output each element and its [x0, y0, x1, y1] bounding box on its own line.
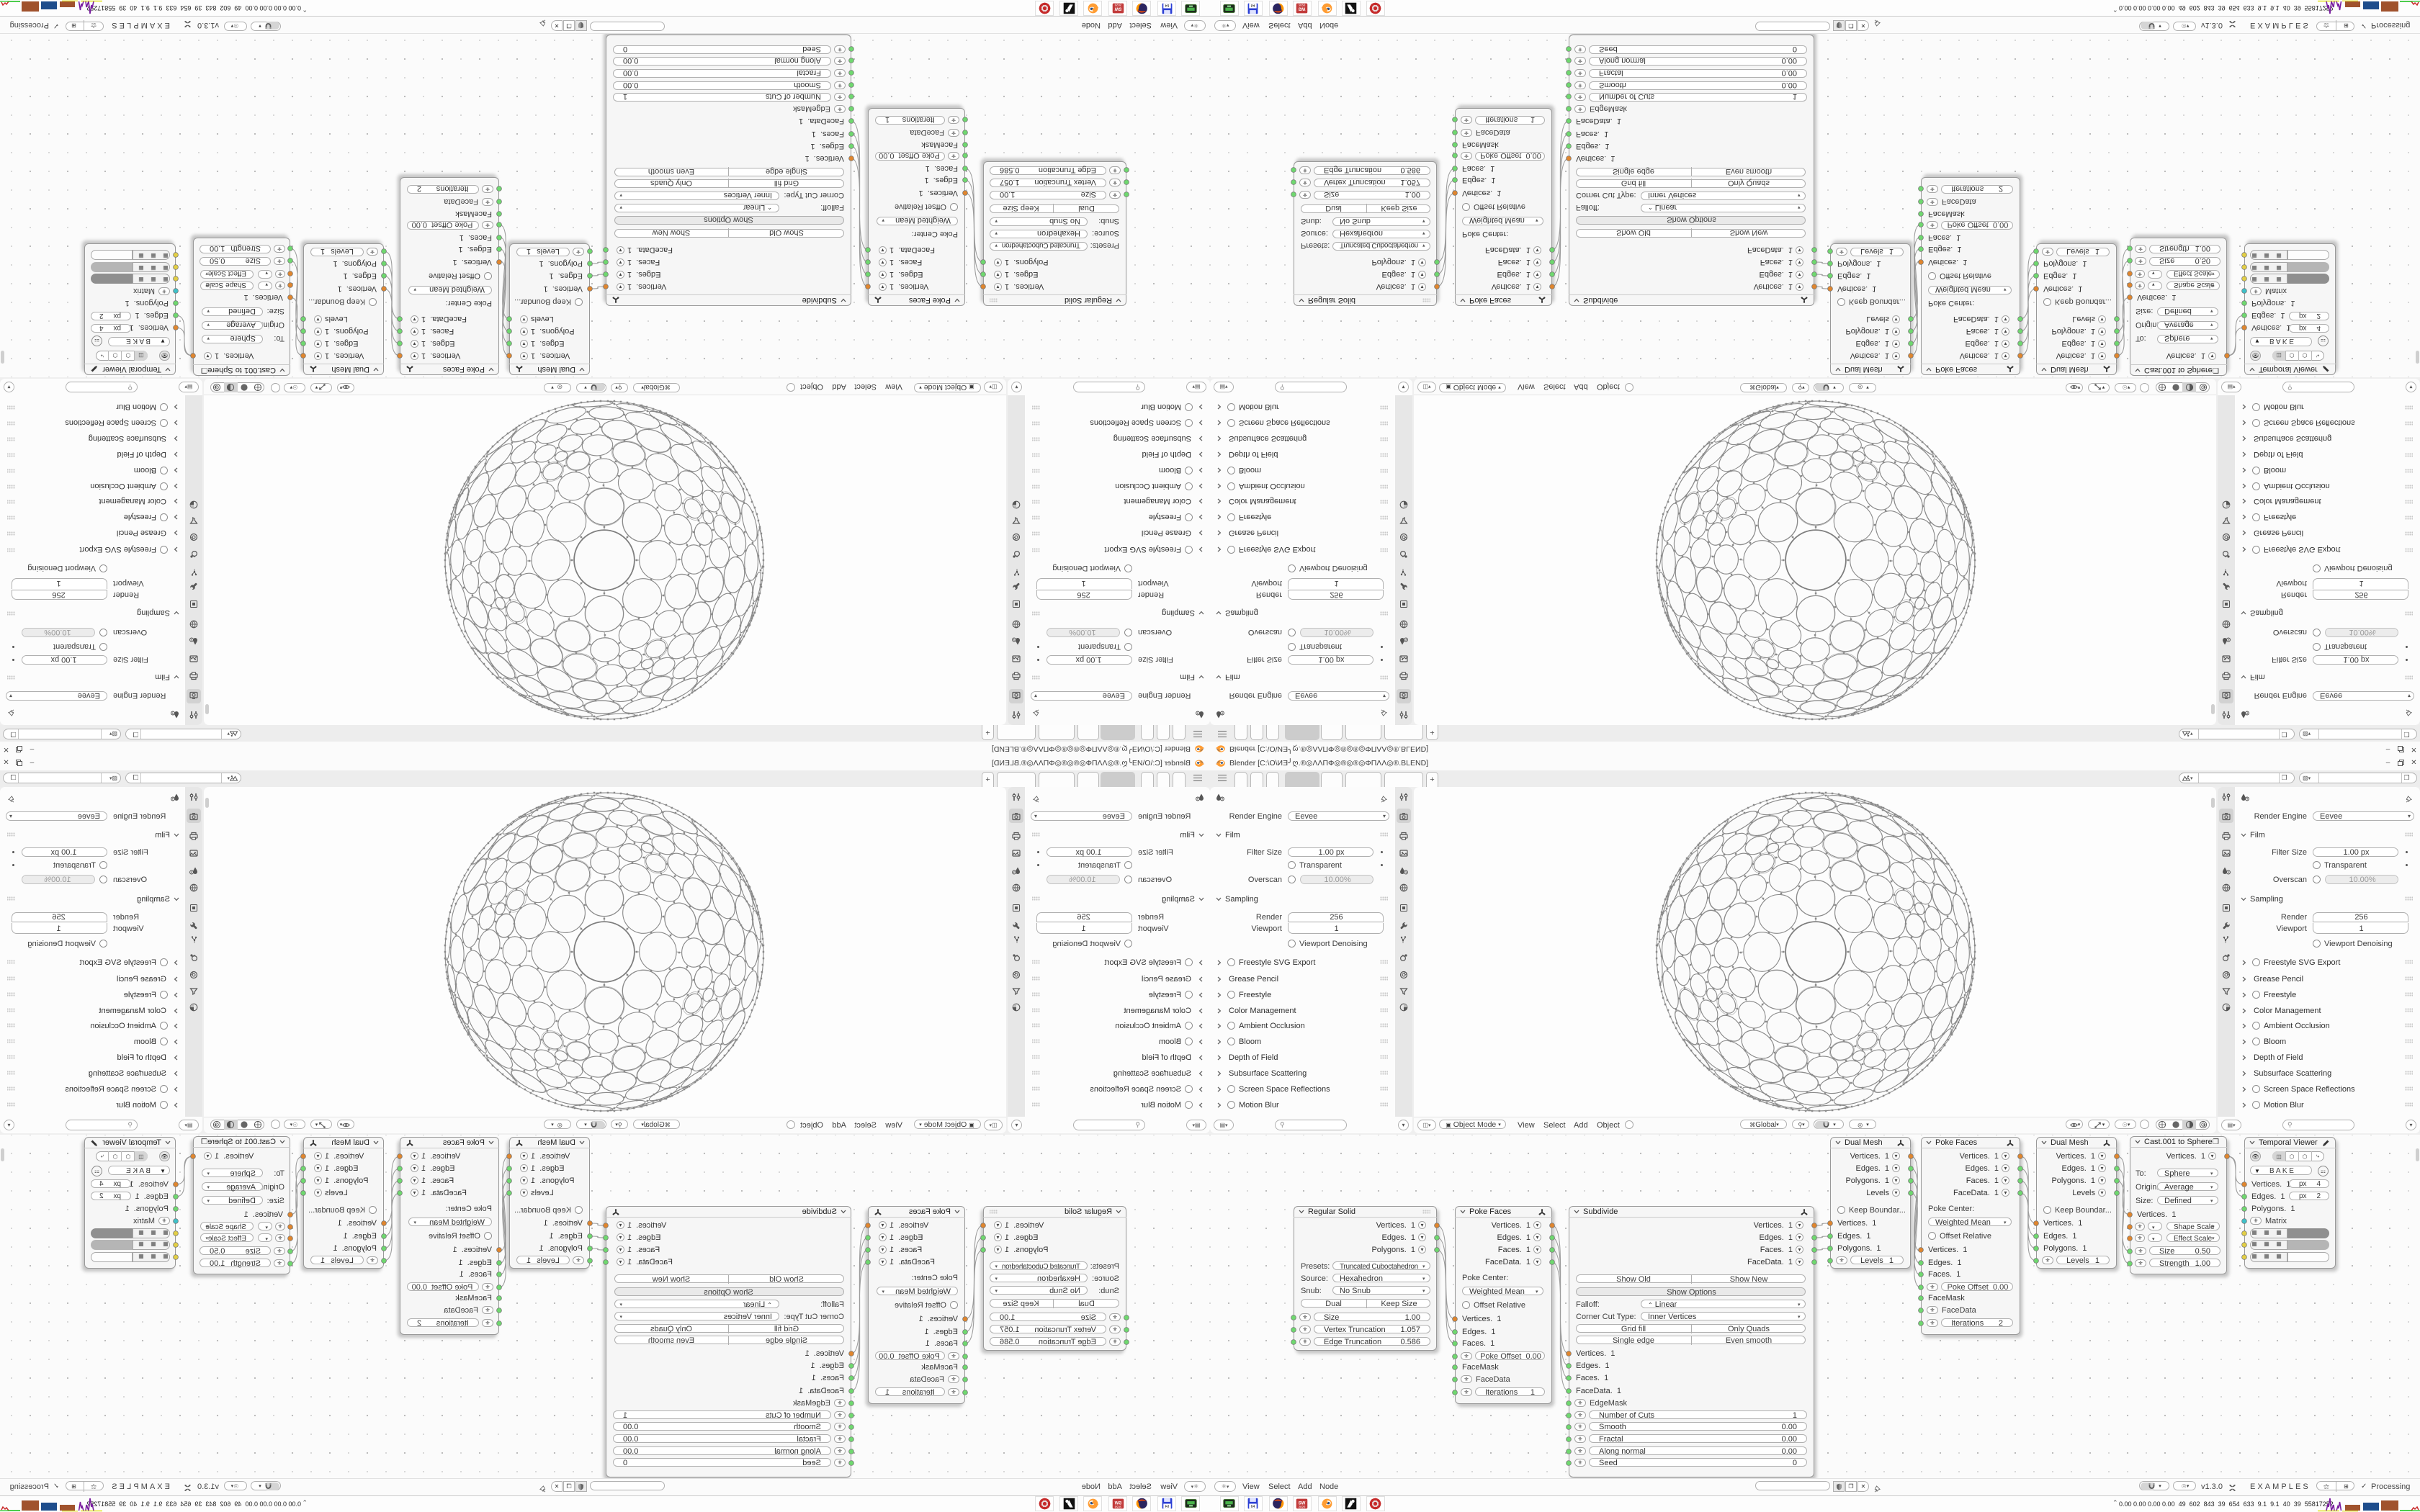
svg-text:64: 64	[1165, 1505, 1170, 1509]
svg-text:64: 64	[1251, 1505, 1255, 1509]
svg-text:2020: 2020	[1299, 1506, 1306, 1509]
svg-text:2020: 2020	[1114, 3, 1121, 6]
svg-text:2020: 2020	[1114, 1506, 1121, 1509]
svg-text:64: 64	[1251, 3, 1255, 7]
svg-text:64: 64	[1165, 3, 1170, 7]
svg-text:2020: 2020	[1299, 3, 1306, 6]
